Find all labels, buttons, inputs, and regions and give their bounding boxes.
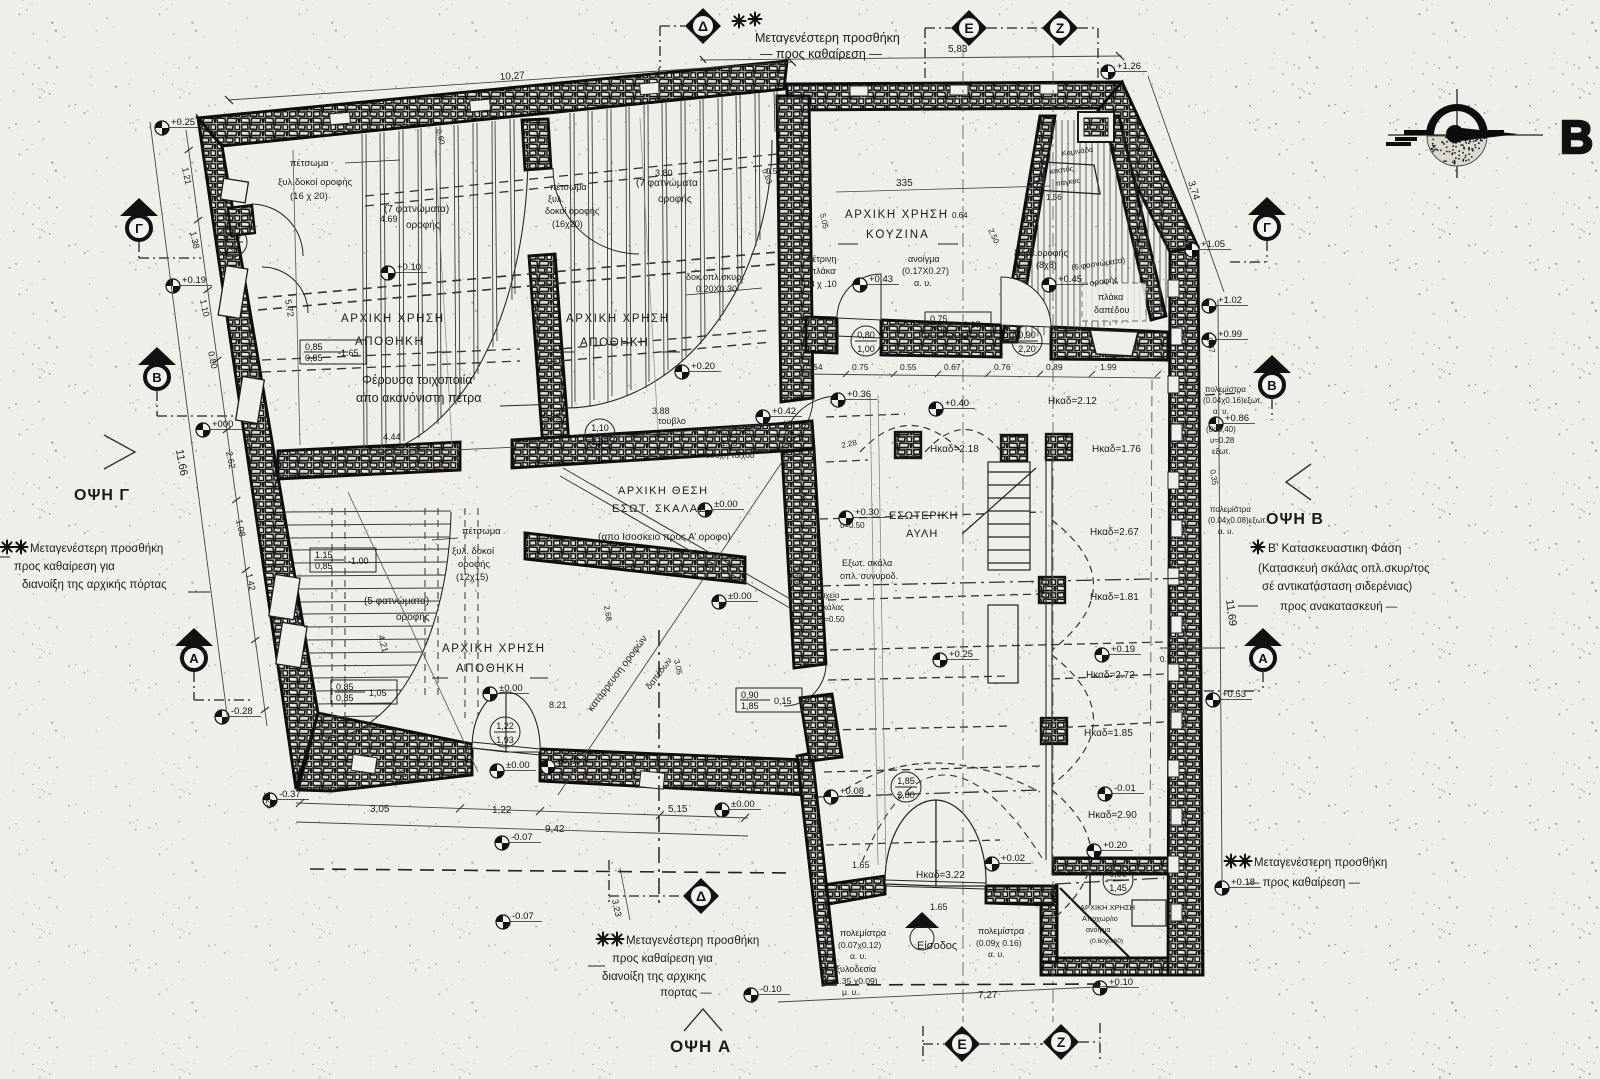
svg-text:Δ: Δ bbox=[698, 18, 708, 34]
svg-text:-0.37: -0.37 bbox=[279, 789, 301, 800]
svg-text:ΑΡΧΙΚΗ ΧΡΗΣΗ: ΑΡΧΙΚΗ ΧΡΗΣΗ bbox=[341, 313, 445, 325]
svg-text:ΑΡΧΙΚΗ ΧΡΗΣΗ: ΑΡΧΙΚΗ ΧΡΗΣΗ bbox=[845, 209, 949, 221]
svg-text:διανοίξη της αρχικης: διανοίξη της αρχικης bbox=[602, 971, 707, 983]
svg-text:1,85: 1,85 bbox=[591, 437, 609, 447]
svg-text:+1.05: +1.05 bbox=[1201, 239, 1225, 250]
svg-text:προς ανακατασκευή —: προς ανακατασκευή — bbox=[1280, 601, 1398, 613]
svg-text:0.89: 0.89 bbox=[1046, 362, 1063, 372]
svg-text:Ηκαδ=2.72: Ηκαδ=2.72 bbox=[1086, 670, 1135, 681]
svg-text:0,85: 0,85 bbox=[315, 561, 333, 571]
svg-text:+0.25: +0.25 bbox=[171, 117, 195, 128]
svg-text:ΑΠΟΘΗΚΗ: ΑΠΟΘΗΚΗ bbox=[456, 663, 525, 675]
svg-text:ΑΠΟΘΗΚΗ: ΑΠΟΘΗΚΗ bbox=[355, 336, 424, 348]
svg-text:E: E bbox=[957, 1036, 966, 1052]
svg-text:προς καθαίρεση για: προς καθαίρεση για bbox=[14, 561, 115, 573]
svg-text:0,90: 0,90 bbox=[930, 325, 948, 335]
svg-text:Ηκαδ=2.67: Ηκαδ=2.67 bbox=[1090, 527, 1139, 538]
svg-text:ξυλ.δοκοί οροφής: ξυλ.δοκοί οροφής bbox=[278, 177, 352, 188]
svg-text:+0.45: +0.45 bbox=[1058, 274, 1082, 285]
svg-text:Β’ Κατασκευαστικη Φάση: Β’ Κατασκευαστικη Φάση bbox=[1268, 541, 1402, 555]
svg-text:+0.42: +0.42 bbox=[772, 406, 796, 417]
svg-text:Εξωτ. σκάλα: Εξωτ. σκάλα bbox=[842, 558, 892, 568]
svg-text:-0.07: -0.07 bbox=[512, 911, 534, 922]
svg-text:0,90: 0,90 bbox=[741, 690, 759, 700]
svg-text:0,85: 0,85 bbox=[336, 693, 354, 703]
svg-text:απο ακανόνιστη πέτρα: απο ακανόνιστη πέτρα bbox=[356, 391, 481, 405]
svg-text:σέ αντικατάσταση σιδερένιας): σέ αντικατάσταση σιδερένιας) bbox=[1262, 581, 1412, 593]
svg-text:0.55: 0.55 bbox=[543, 412, 561, 422]
svg-text:0,97: 0,97 bbox=[963, 320, 981, 330]
svg-text:ξυλοδεσία: ξυλοδεσία bbox=[836, 964, 876, 974]
svg-text:1,45: 1,45 bbox=[1109, 883, 1127, 893]
svg-text:ΑΠΟΘΗΚΗ: ΑΠΟΘΗΚΗ bbox=[580, 337, 649, 349]
svg-text:Z: Z bbox=[1056, 20, 1065, 36]
svg-text:+0.40: +0.40 bbox=[945, 398, 969, 409]
svg-text:4.69: 4.69 bbox=[380, 214, 398, 224]
svg-text:ανοιγμα: ανοιγμα bbox=[1086, 927, 1111, 934]
svg-text:+0.20: +0.20 bbox=[1103, 840, 1127, 851]
svg-text:Γ: Γ bbox=[135, 221, 143, 236]
svg-text:οροφής: οροφής bbox=[406, 219, 440, 231]
svg-text:εξωτ.: εξωτ. bbox=[1212, 447, 1231, 456]
svg-text:α. υ.: α. υ. bbox=[1218, 527, 1234, 536]
svg-text:ΑΡΧΙΚΗ ΧΡΗΣΗ: ΑΡΧΙΚΗ ΧΡΗΣΗ bbox=[566, 313, 670, 325]
svg-text:ξ.δοκ.οροφής: ξ.δοκ.οροφής bbox=[1014, 248, 1069, 258]
svg-text:A: A bbox=[1258, 651, 1268, 666]
svg-text:335: 335 bbox=[896, 178, 913, 189]
svg-text:+0.25: +0.25 bbox=[949, 649, 973, 660]
svg-text:μ. υ.: μ. υ. bbox=[842, 987, 859, 997]
svg-text:(5 φατνώματα): (5 φατνώματα) bbox=[364, 595, 429, 607]
svg-text:0,85: 0,85 bbox=[336, 682, 354, 692]
svg-text:2,20: 2,20 bbox=[1018, 344, 1036, 354]
svg-text:ΑΥΛΗ: ΑΥΛΗ bbox=[906, 528, 938, 540]
svg-text:1.15: 1.15 bbox=[315, 550, 333, 560]
svg-text:+000: +000 bbox=[212, 419, 233, 430]
svg-text:ΟΨΗ A: ΟΨΗ A bbox=[670, 1037, 731, 1056]
svg-text:+0.53: +0.53 bbox=[1222, 689, 1246, 700]
svg-text:0.71: 0.71 bbox=[1160, 655, 1176, 664]
svg-text:υ=0.50: υ=0.50 bbox=[820, 615, 845, 624]
svg-text:(16 χ 20): (16 χ 20) bbox=[290, 191, 328, 202]
svg-text:τουβλο: τουβλο bbox=[658, 416, 686, 426]
svg-text:0.75: 0.75 bbox=[852, 362, 869, 372]
svg-text:+0.36: +0.36 bbox=[847, 389, 871, 400]
svg-text:διανοίξη της αρχικής πόρτας: διανοίξη της αρχικής πόρτας bbox=[22, 579, 167, 591]
svg-text:πολεμίστρα: πολεμίστρα bbox=[1205, 385, 1246, 394]
svg-text:πέτσωμα: πέτσωμα bbox=[290, 158, 329, 169]
svg-text:Ηκαδ=2.18: Ηκαδ=2.18 bbox=[930, 444, 979, 455]
svg-text:ΕΣΩΤ. ΣΚΑΛΑΣ: ΕΣΩΤ. ΣΚΑΛΑΣ bbox=[612, 503, 707, 515]
svg-text:υ=0.50: υ=0.50 bbox=[840, 521, 865, 530]
svg-text:0.75: 0.75 bbox=[930, 314, 948, 324]
svg-text:1,22: 1,22 bbox=[496, 721, 514, 731]
svg-text:-0.01: -0.01 bbox=[1114, 783, 1136, 794]
svg-text:0,90: 0,90 bbox=[1109, 869, 1127, 879]
svg-text:πολεμίστρα: πολεμίστρα bbox=[840, 928, 886, 938]
svg-text:1,93: 1,93 bbox=[496, 735, 514, 745]
svg-text:0,80: 0,80 bbox=[857, 330, 875, 340]
svg-text:ΟΨΗ Β: ΟΨΗ Β bbox=[1266, 511, 1324, 528]
svg-text:+1.02: +1.02 bbox=[1218, 295, 1242, 306]
svg-text:Μεταγενέστερη προσθήκη: Μεταγενέστερη προσθήκη bbox=[1254, 857, 1387, 869]
svg-text:(0.04χ0.16)εξωτ.: (0.04χ0.16)εξωτ. bbox=[1203, 396, 1262, 405]
svg-text:πέτσωμα: πέτσωμα bbox=[550, 182, 587, 192]
svg-text:8.21: 8.21 bbox=[549, 700, 567, 710]
svg-text:1,8 χ .10: 1,8 χ .10 bbox=[802, 279, 837, 289]
svg-text:— προς καθαίρεση —: — προς καθαίρεση — bbox=[1248, 877, 1361, 889]
svg-text:οροφής: οροφής bbox=[396, 611, 430, 623]
svg-text:0.52-: 0.52- bbox=[766, 167, 785, 176]
svg-text:δαπέδου: δαπέδου bbox=[1094, 305, 1129, 315]
svg-text:(7 φατνώματα): (7 φατνώματα) bbox=[384, 203, 449, 215]
svg-text:+0.10: +0.10 bbox=[397, 262, 421, 273]
svg-text:±0.00: ±0.00 bbox=[499, 683, 523, 694]
svg-text:-1.65: -1.65 bbox=[338, 348, 359, 358]
svg-text:4.44: 4.44 bbox=[383, 432, 401, 442]
svg-text:(8χ8): (8χ8) bbox=[1036, 260, 1057, 270]
svg-text:σκάλας: σκάλας bbox=[818, 603, 844, 612]
svg-text:ξυλ. δοκοί: ξυλ. δοκοί bbox=[452, 546, 495, 557]
svg-text:— προς καθαίρεση —: — προς καθαίρεση — bbox=[760, 47, 882, 61]
svg-text:1.99: 1.99 bbox=[1100, 362, 1117, 372]
svg-text:πλάκα: πλάκα bbox=[810, 266, 835, 276]
svg-text:+1.26: +1.26 bbox=[1117, 61, 1141, 72]
svg-text:οπλ. συνυροδ.: οπλ. συνυροδ. bbox=[840, 571, 898, 581]
svg-text:-0.07: -0.07 bbox=[511, 832, 533, 843]
svg-text:ΕΣΩΤΕΡΙΚΗ: ΕΣΩΤΕΡΙΚΗ bbox=[889, 510, 958, 522]
svg-text:(7 φατνώματα: (7 φατνώματα bbox=[636, 177, 698, 189]
svg-text:(0ο0,40): (0ο0,40) bbox=[1206, 425, 1236, 434]
svg-text:Z: Z bbox=[1057, 1034, 1066, 1050]
svg-text:-1.03 -: -1.03 - bbox=[718, 438, 743, 448]
svg-text:ΑΡΧΙΚΗ ΘΕΣΗ: ΑΡΧΙΚΗ ΘΕΣΗ bbox=[618, 485, 709, 497]
svg-text:+0.19: +0.19 bbox=[182, 275, 206, 286]
svg-text:πολεμίστρα: πολεμίστρα bbox=[1210, 505, 1251, 514]
svg-text:1,22: 1,22 bbox=[492, 805, 512, 816]
svg-text:Ηκαδ=1.76: Ηκαδ=1.76 bbox=[1092, 444, 1141, 455]
svg-text:(0.17Χ0.27): (0.17Χ0.27) bbox=[902, 266, 949, 276]
svg-text:1,05: 1,05 bbox=[369, 688, 387, 698]
svg-text:πολεμίστρα: πολεμίστρα bbox=[978, 926, 1024, 936]
svg-text:οροφής: οροφής bbox=[658, 193, 692, 205]
svg-text:+0.30: +0.30 bbox=[855, 507, 879, 518]
svg-text:-0.10: -0.10 bbox=[760, 984, 782, 995]
svg-text:-0.28: -0.28 bbox=[231, 706, 253, 717]
svg-text:Τοιχείο: Τοιχείο bbox=[815, 591, 840, 600]
svg-text:3.88: 3.88 bbox=[652, 406, 670, 416]
svg-text:α. υ.: α. υ. bbox=[1213, 407, 1229, 416]
svg-text:(0.09χ 0.16): (0.09χ 0.16) bbox=[976, 938, 1022, 948]
svg-text:ξυλ.: ξυλ. bbox=[548, 194, 564, 204]
svg-text:Γ: Γ bbox=[1263, 220, 1271, 235]
svg-text:ΚΟΥΖΙΝΑ: ΚΟΥΖΙΝΑ bbox=[866, 229, 930, 241]
svg-text:πέτρινη: πέτρινη bbox=[806, 254, 836, 264]
svg-text:1,85: 1,85 bbox=[741, 701, 759, 711]
svg-text:(16χ20): (16χ20) bbox=[552, 219, 583, 229]
svg-text:α. υ.: α. υ. bbox=[988, 949, 1005, 959]
svg-text:προς καθαίρεση για: προς καθαίρεση για bbox=[612, 953, 713, 965]
svg-text:οροφής: οροφής bbox=[458, 559, 490, 570]
svg-text:-1.00: -1.00 bbox=[348, 556, 369, 566]
svg-text:πλάκα: πλάκα bbox=[1098, 292, 1123, 302]
svg-text:Δ: Δ bbox=[696, 888, 706, 904]
svg-text:+0.99: +0.99 bbox=[1218, 329, 1242, 340]
svg-text:±0.00: ±0.00 bbox=[728, 591, 752, 602]
svg-text:Ηκαδ=1.85: Ηκαδ=1.85 bbox=[1084, 728, 1133, 739]
svg-text:υ≈0.28: υ≈0.28 bbox=[1210, 436, 1235, 445]
svg-text:+0.08: +0.08 bbox=[840, 786, 864, 797]
svg-text:3.80: 3.80 bbox=[655, 168, 673, 178]
svg-text:+0.43: +0.43 bbox=[869, 274, 893, 285]
svg-text:0,85: 0,85 bbox=[305, 342, 323, 352]
svg-text:1.56: 1.56 bbox=[1046, 193, 1062, 202]
svg-text:Μεταγενέστερη προσθήκη: Μεταγενέστερη προσθήκη bbox=[30, 543, 163, 555]
svg-text:1,95: 1,95 bbox=[223, 245, 241, 255]
svg-text:ΑΡΧΙΚΗ ΧΡΗΣΗ: ΑΡΧΙΚΗ ΧΡΗΣΗ bbox=[442, 643, 546, 655]
svg-text:(0.60χ0.60): (0.60χ0.60) bbox=[1090, 938, 1123, 945]
svg-text:(Κατασκευή σκάλας οπλ.σκυρ/τος: (Κατασκευή σκάλας οπλ.σκυρ/τος bbox=[1258, 563, 1430, 575]
svg-text:1.65: 1.65 bbox=[930, 902, 948, 912]
svg-text:εσοχη τοίχου: εσοχη τοίχου bbox=[706, 450, 755, 460]
svg-text:1,85: 1,85 bbox=[897, 776, 915, 786]
svg-text:7,27: 7,27 bbox=[978, 990, 998, 1001]
svg-text:1,10: 1,10 bbox=[591, 423, 609, 433]
svg-text:B: B bbox=[152, 370, 161, 385]
svg-text:B: B bbox=[1267, 378, 1276, 393]
svg-text:Ηκαδ=2.12: Ηκαδ=2.12 bbox=[1048, 396, 1097, 407]
svg-text:±0.00: ±0.00 bbox=[557, 756, 581, 767]
svg-text:δοκοί οροφής: δοκοί οροφής bbox=[545, 206, 600, 216]
svg-text:δοκ.οπλ.σκυρ.: δοκ.οπλ.σκυρ. bbox=[686, 272, 744, 282]
svg-text:±0.00: ±0.00 bbox=[731, 799, 755, 810]
svg-text:9,42: 9,42 bbox=[545, 824, 565, 835]
svg-text:Ηκαδ 1.78: Ηκαδ 1.78 bbox=[712, 426, 751, 436]
svg-text:Μεταγενέστερη προσθήκη: Μεταγενέστερη προσθήκη bbox=[626, 935, 759, 947]
svg-text:ανοίγμα: ανοίγμα bbox=[908, 254, 940, 264]
svg-text:Μεταγενέστερη προσθήκη: Μεταγενέστερη προσθήκη bbox=[755, 31, 900, 45]
svg-text:Ηκαδ=3.22: Ηκαδ=3.22 bbox=[916, 870, 965, 881]
svg-text:E: E bbox=[964, 20, 973, 36]
svg-text:0.55: 0.55 bbox=[900, 362, 917, 372]
svg-text:(12χ15): (12χ15) bbox=[456, 572, 488, 583]
svg-text:α. υ.: α. υ. bbox=[850, 951, 867, 961]
svg-text:+0.02: +0.02 bbox=[1001, 853, 1025, 864]
svg-text:(0.07χ0.12): (0.07χ0.12) bbox=[838, 940, 881, 950]
svg-text:Φέρουσα τοιχοποιία: Φέρουσα τοιχοποιία bbox=[362, 373, 473, 387]
svg-text:1.65: 1.65 bbox=[852, 860, 870, 870]
svg-text:0,85: 0,85 bbox=[305, 353, 323, 363]
svg-text:5,15: 5,15 bbox=[668, 804, 688, 815]
svg-text:2,80: 2,80 bbox=[897, 790, 915, 800]
svg-text:Ηκαδ=2.90: Ηκαδ=2.90 bbox=[1088, 810, 1137, 821]
svg-text:3,05: 3,05 bbox=[370, 804, 390, 815]
svg-text:4,45: 4,45 bbox=[223, 231, 241, 241]
svg-text:(0.04χ0.08)εξωτ.: (0.04χ0.08)εξωτ. bbox=[1208, 516, 1267, 525]
svg-text:ΟΨΗ Γ: ΟΨΗ Γ bbox=[74, 487, 130, 504]
svg-text:+0.19: +0.19 bbox=[1111, 644, 1135, 655]
svg-text:+0.20: +0.20 bbox=[691, 361, 715, 372]
svg-text:0.64: 0.64 bbox=[952, 211, 968, 220]
svg-text:±0.00: ±0.00 bbox=[714, 499, 738, 510]
svg-text:Ηκαδ=1.81: Ηκαδ=1.81 bbox=[1090, 592, 1139, 603]
svg-text:5,83: 5,83 bbox=[948, 44, 968, 55]
svg-text:0.54: 0.54 bbox=[806, 362, 823, 372]
svg-text:0.67: 0.67 bbox=[944, 362, 961, 372]
svg-text:0.84: 0.84 bbox=[952, 332, 969, 342]
svg-text:10,27: 10,27 bbox=[499, 70, 525, 83]
svg-text:ΑΡΧΙΚΗ ΧΡΗΣΗ: ΑΡΧΙΚΗ ΧΡΗΣΗ bbox=[1080, 903, 1135, 912]
svg-text:πορτας —: πορτας — bbox=[660, 987, 712, 999]
svg-text:πέτσωμα: πέτσωμα bbox=[462, 526, 501, 537]
svg-text:±0.00: ±0.00 bbox=[506, 760, 530, 771]
svg-text:(απο Ισοσκειο προς Α’ οροφο): (απο Ισοσκειο προς Α’ οροφο) bbox=[598, 532, 731, 543]
svg-text:1,00: 1,00 bbox=[857, 344, 875, 354]
svg-text:0,90: 0,90 bbox=[1018, 330, 1036, 340]
svg-text:0,15: 0,15 bbox=[774, 696, 792, 706]
svg-text:α. υ.: α. υ. bbox=[914, 278, 932, 288]
svg-text:0.76: 0.76 bbox=[994, 362, 1011, 372]
svg-text:Αποχωρ/ιο: Αποχωρ/ιο bbox=[1082, 914, 1118, 923]
svg-text:A: A bbox=[189, 651, 199, 666]
svg-text:B: B bbox=[1560, 111, 1593, 163]
